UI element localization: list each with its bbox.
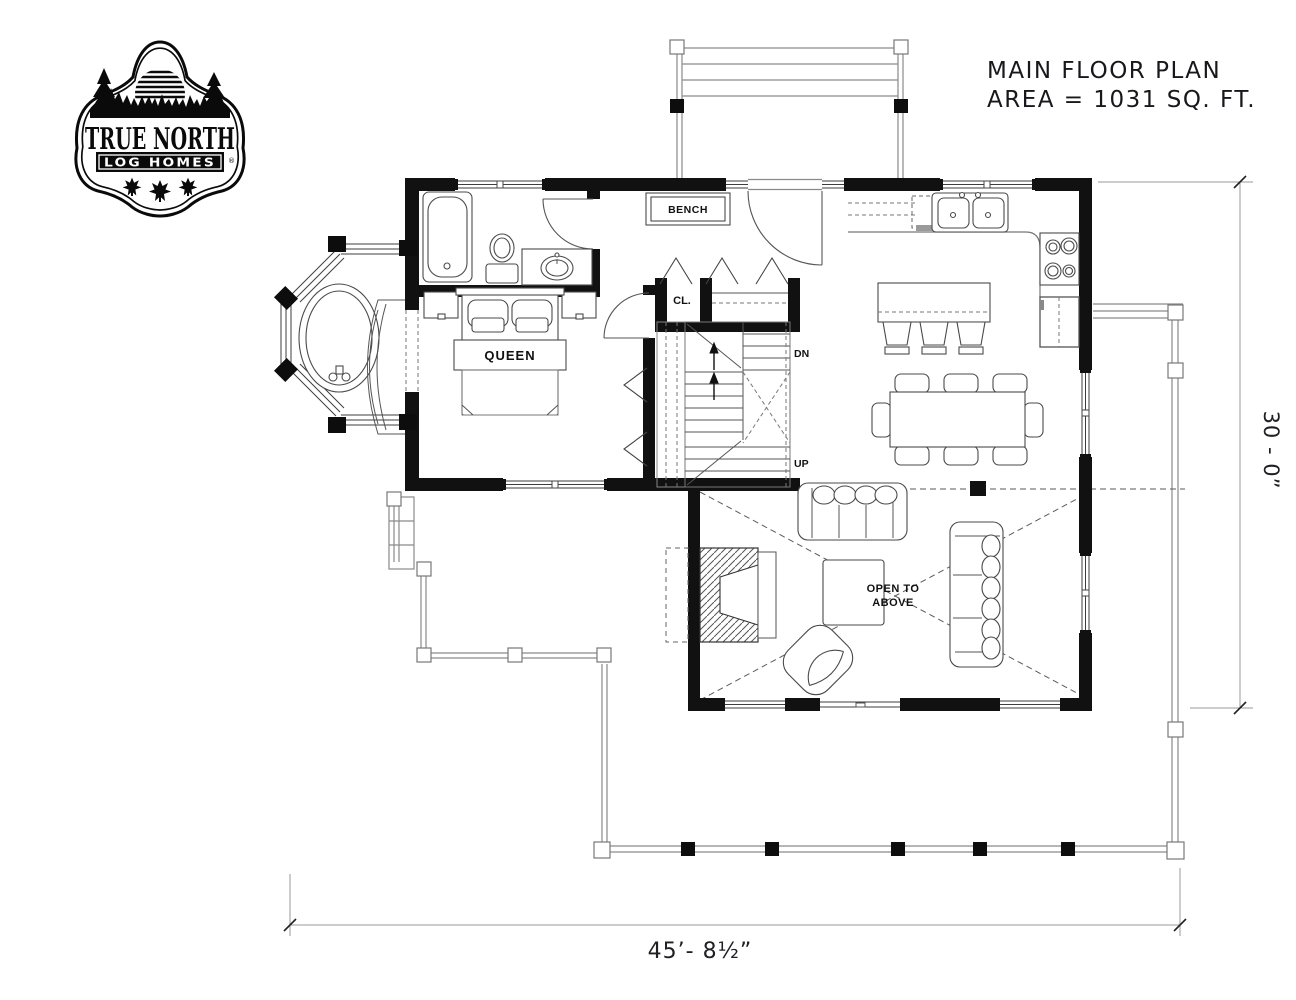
vanity-sink bbox=[522, 249, 592, 285]
entry: BENCH CL. bbox=[646, 193, 788, 307]
entry-door bbox=[748, 180, 822, 266]
kitchen-island bbox=[878, 283, 990, 354]
staircase: DN UP bbox=[657, 322, 809, 487]
queen-bed: QUEEN bbox=[454, 288, 566, 415]
structural-post bbox=[970, 481, 986, 496]
dimension-depth: 30 - 0” bbox=[1098, 176, 1283, 714]
fireplace bbox=[666, 548, 776, 642]
nightstand-knob bbox=[438, 314, 445, 319]
armchair bbox=[776, 618, 859, 701]
open-to-above-label: OPEN TO bbox=[867, 583, 920, 595]
company-logo: TRUE NORTH LOG HOMES ® bbox=[76, 42, 244, 216]
porch-post bbox=[1167, 842, 1184, 859]
kitchen bbox=[848, 193, 1079, 355]
living-room: OPEN TO ABOVE bbox=[666, 483, 1003, 702]
logo-subtitle: LOG HOMES bbox=[104, 155, 216, 170]
entry-porch bbox=[670, 40, 908, 188]
plan-title: MAIN FLOOR PLAN bbox=[987, 58, 1221, 84]
nightstand-knob bbox=[576, 314, 583, 319]
sill-opening bbox=[820, 699, 900, 710]
bay-window bbox=[274, 236, 417, 434]
porch-post bbox=[1061, 842, 1075, 856]
stairs-up-label: UP bbox=[794, 458, 809, 470]
sidelite-window bbox=[822, 179, 844, 190]
porch-post bbox=[894, 40, 908, 54]
porch-post bbox=[1168, 363, 1183, 378]
depth-dimension-label: 30 - 0” bbox=[1259, 411, 1283, 490]
bathroom-door bbox=[543, 199, 593, 249]
porch-post bbox=[891, 842, 905, 856]
porch-post bbox=[1168, 722, 1183, 737]
porch-post bbox=[417, 562, 431, 576]
stairs-down-label: DN bbox=[794, 348, 809, 360]
dining-area bbox=[872, 374, 1043, 465]
sidelite-window bbox=[726, 179, 748, 190]
porch-post bbox=[1168, 305, 1183, 320]
window bbox=[1000, 699, 1060, 710]
porch-post bbox=[597, 648, 611, 662]
stove bbox=[1040, 233, 1079, 285]
window bbox=[940, 179, 1035, 190]
porch-post bbox=[417, 648, 431, 662]
bed-size-label: QUEEN bbox=[484, 348, 535, 363]
kitchen-sink bbox=[932, 193, 1008, 233]
porch-post bbox=[973, 842, 987, 856]
dining-table bbox=[890, 392, 1025, 447]
floor-plan-canvas: TRUE NORTH LOG HOMES ® MAIN FLOOR PLAN A… bbox=[0, 0, 1296, 1000]
bar-stool bbox=[920, 322, 948, 354]
porch-post bbox=[387, 492, 401, 506]
sofa bbox=[798, 483, 907, 540]
floor-plan-page: TRUE NORTH LOG HOMES ® MAIN FLOOR PLAN A… bbox=[0, 0, 1296, 1000]
bench-label: BENCH bbox=[668, 204, 708, 216]
window bbox=[1080, 370, 1091, 457]
porch-post bbox=[765, 842, 779, 856]
window bbox=[455, 179, 545, 190]
open-to-above-label: ABOVE bbox=[872, 597, 914, 609]
registered-mark: ® bbox=[228, 157, 235, 165]
porch-post bbox=[508, 648, 522, 662]
bench: BENCH bbox=[646, 193, 730, 225]
porch-post bbox=[670, 40, 684, 54]
refrigerator bbox=[1040, 297, 1079, 347]
bedroom: QUEEN bbox=[424, 288, 596, 415]
width-dimension-label: 45’- 8½” bbox=[648, 939, 753, 964]
whirlpool-tub bbox=[299, 284, 379, 392]
dimension-width: 45’- 8½” bbox=[284, 868, 1186, 964]
window bbox=[503, 479, 607, 490]
bar-stool bbox=[883, 322, 911, 354]
title-block: MAIN FLOOR PLAN AREA = 1031 SQ. FT. bbox=[987, 58, 1256, 113]
bedroom-door bbox=[604, 293, 649, 338]
window bbox=[725, 699, 785, 710]
plan-area: AREA = 1031 SQ. FT. bbox=[987, 87, 1256, 113]
porch-post bbox=[670, 99, 684, 113]
window bbox=[1080, 553, 1091, 633]
closet-label: CL. bbox=[673, 295, 691, 307]
logo-title: TRUE NORTH bbox=[85, 122, 235, 157]
bar-stool bbox=[957, 322, 985, 354]
porch-post bbox=[681, 842, 695, 856]
closet: CL. bbox=[673, 293, 788, 307]
sofa bbox=[950, 522, 1003, 667]
porch-post bbox=[894, 99, 908, 113]
toilet bbox=[486, 234, 518, 283]
bathtub bbox=[423, 192, 472, 282]
cased-opening bbox=[405, 310, 419, 392]
bathroom bbox=[423, 192, 592, 285]
porch-post bbox=[594, 842, 610, 858]
